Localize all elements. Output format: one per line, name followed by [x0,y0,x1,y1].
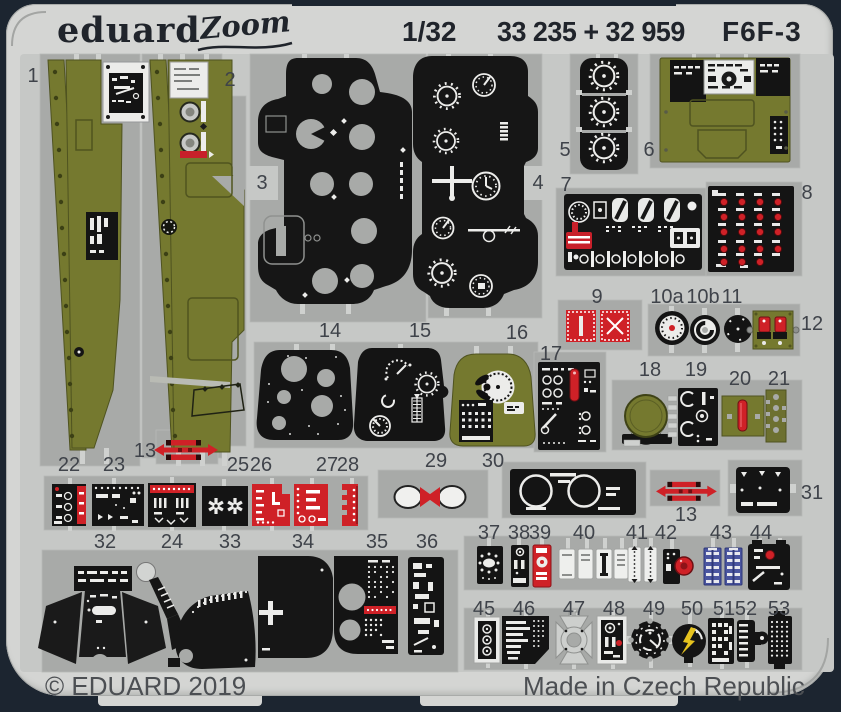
part-44 [748,540,790,590]
part-35-panel [334,556,398,654]
catalog-numbers: 33 235 + 32 959 [497,16,685,48]
part-21-strip [766,390,786,442]
part-34-door [258,556,333,658]
part-45-film-strip [474,617,500,663]
part-14-aux-panel [257,350,354,440]
zoom-logo-swash [196,40,296,54]
part-39 [533,545,551,587]
part-12-switch-plate [747,311,799,349]
scale-text: 1/32 [402,16,457,48]
part-48 [597,616,627,664]
part-27 [294,484,328,526]
aircraft-model: F6F-3 [722,16,802,48]
part-31-access-panel [730,467,796,513]
part-8-switch-panel [708,186,794,272]
part-7-console [564,194,702,270]
part-51 [708,618,734,664]
part-30-gauge-plate [510,469,636,515]
product-photo: eduard Zoom 1/32 33 235 + 32 959 F6F-3 ©… [0,0,841,712]
part-10b-ring [690,315,720,345]
part-24-panel [148,483,196,527]
part-6-upper-panel [660,58,790,162]
origin-text: Made in Czech Republic [523,671,805,702]
part-37 [477,546,503,584]
copyright-text: © EDUARD 2019 [45,671,246,702]
part-17-side-console [538,362,600,450]
data-plate [103,62,149,122]
part-53 [768,611,792,669]
part-28 [342,484,358,526]
eduard-logo: eduard [57,10,201,51]
part-20-red-lever-plate [722,396,764,436]
pe-parts-graphic [0,0,841,712]
part-38 [511,545,529,587]
part-25 [202,486,248,526]
part-40-placards [559,549,628,579]
label-notch [248,166,278,200]
part-10a-dial [655,311,689,345]
part-4-instrument-film [413,56,538,308]
part-5-gauge-stack [576,58,632,170]
part-19-bracket-panel [678,388,718,446]
corner-bevel [12,12,46,46]
part-22 [52,484,86,526]
label-notch [524,166,554,200]
part-16-compass-panel [450,354,535,446]
part-36-strip-panel [408,557,444,655]
part-23 [92,484,144,526]
part-15-aux-panel-film [354,348,448,441]
